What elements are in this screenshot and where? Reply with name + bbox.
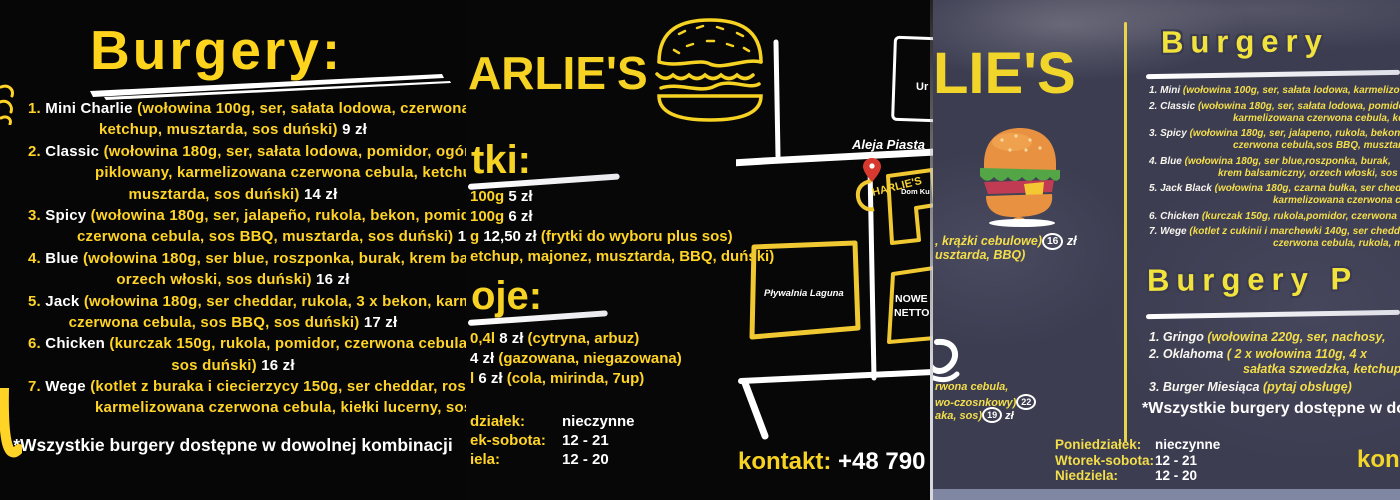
cropped-letter-icon <box>0 388 22 483</box>
menu-line: krem balsamiczny, orzech włoski, sos duń… <box>933 169 1400 181</box>
item-price: 1 <box>458 228 466 245</box>
opening-hours: działek:nieczynneek-sobota:12 - 21iela:1… <box>466 414 635 471</box>
item-number: 4. <box>1149 156 1160 167</box>
item-desc: czerwona cebula,sos BBQ, musztarda, <box>1233 140 1400 151</box>
item-price: 14 zł <box>304 186 338 203</box>
item-desc: (wołowina 180g, czarna bułka, ser chedda… <box>1215 183 1400 194</box>
menu-line: wo-czosnkowy)22 <box>933 395 1036 408</box>
item-name: Mini Charlie <box>45 100 137 117</box>
price-badge: 19 <box>982 407 1002 423</box>
item-desc: 0,4l <box>470 330 499 347</box>
item-desc: karmelizowana czerwona cebula, kiełki lu… <box>95 399 466 416</box>
item-desc: (kotlet z buraka i ciecierzycy 150g, ser… <box>90 378 466 395</box>
item-desc: sałatka szwedzka, ketchup, <box>1243 362 1400 376</box>
burgery-title: Burgery: <box>90 18 343 82</box>
item-desc: (wołowina 100g, ser, sałata lodowa, czer… <box>137 100 466 117</box>
middle-menu-panel: ARLIE'S tki: 100g 5 zł100g 6 złg 12,50 z… <box>466 0 933 500</box>
item-number: 5. <box>28 293 45 310</box>
map-netto-building <box>889 268 933 342</box>
item-number: 6. <box>1149 211 1160 222</box>
table-edge <box>933 489 1400 500</box>
item-name: Jack Black <box>1160 183 1215 194</box>
item-desc: (wołowina 220g, ser, nachosy, <box>1207 330 1385 344</box>
item-number: 7. <box>1149 226 1160 237</box>
menu-line: czerwona cebula,sos BBQ, musztarda, <box>933 141 1400 153</box>
panel-separator <box>930 0 933 500</box>
item-desc: (wołowina 180g, ser, jalapeño, rukola, b… <box>91 207 466 224</box>
item-desc: krem balsamiczny, orzech włoski, sos duń… <box>1218 168 1400 179</box>
item-price: 6 zł <box>478 370 506 387</box>
menu-line: 3. Spicy (wołowina 180g, ser, jalapeño, … <box>0 208 466 229</box>
menu-triptych: Burgery: 1. Mini Charlie (wołowina 100g,… <box>0 0 1400 500</box>
item-desc: (cytryna, arbuz) <box>528 330 640 347</box>
map-road <box>776 42 778 156</box>
contact-label: kont <box>1357 446 1400 474</box>
item-desc: (wołowina 180g, ser, sałata lodowa, pomi… <box>104 143 466 160</box>
hours-value: nieczynne <box>562 413 635 430</box>
item-desc: ( 2 x wołowina 110g, 4 x <box>1227 347 1367 361</box>
menu-line: 1. Mini (wołowina 100g, ser, sałata lodo… <box>933 86 1400 98</box>
menu-line: 100g 5 zł <box>466 189 774 209</box>
map-street-label: Aleja Piasta <box>851 137 925 152</box>
item-number: 2. <box>28 143 45 160</box>
item-name: Chicken <box>1160 211 1202 222</box>
menu-line: Wtorek-sobota:12 - 21 <box>1055 454 1220 470</box>
item-desc: (pytaj obsługę) <box>1263 380 1352 394</box>
menu-line: czerwona cebula, rukola, majonez, <box>933 239 1400 251</box>
item-name: Blue <box>45 250 83 267</box>
item-number: 4. <box>28 250 45 267</box>
menu-line: 2. Oklahoma ( 2 x wołowina 110g, 4 x <box>933 348 1400 363</box>
menu-line: działek:nieczynne <box>466 414 635 433</box>
menu-line: aka, sos)19 zł <box>933 408 1036 421</box>
hours-label: Wtorek-sobota: <box>1055 454 1155 468</box>
item-desc: piklowany, karmelizowana czerwona cebula… <box>95 164 466 181</box>
map-road <box>741 372 933 381</box>
location-pin-dot <box>869 163 874 168</box>
item-desc: (wołowina 180g, ser blue, roszponka, bur… <box>83 250 466 267</box>
hours-value: 12 - 21 <box>1155 453 1197 468</box>
map-road-aleja-piasta <box>736 152 933 163</box>
brush-underline <box>1146 310 1400 319</box>
item-name: Blue <box>1160 156 1184 167</box>
item-desc: sos duński) <box>171 357 261 374</box>
hand-drawn-map: Aleja Piasta Ur HARLIE'S Dom Ku Pływalni… <box>736 0 933 500</box>
menu-line: musztarda, sos duński) 14 zł <box>0 187 466 208</box>
item-desc: karmelizowana czerwona cebula, <box>1273 195 1400 206</box>
menu-line: Poniedziałek:nieczynne <box>1055 438 1220 454</box>
menu-line: 6. Chicken (kurczak 150g, rukola,pomidor… <box>933 212 1400 224</box>
item-name: Spicy <box>1160 128 1189 139</box>
item-name: Wege <box>45 378 90 395</box>
hours-label: Poniedziałek: <box>1055 438 1155 452</box>
item-price: 12,50 zł <box>483 228 541 245</box>
hours-label: Niedziela: <box>1055 469 1155 483</box>
menu-line: iela:12 - 20 <box>466 452 635 471</box>
brush-underline <box>90 74 462 102</box>
menu-line: g 12,50 zł (frytki do wyboru plus sos) <box>466 229 774 249</box>
map-netto-label-2: NETTO <box>894 307 929 319</box>
item-name: Gringo <box>1163 330 1207 344</box>
hours-value: 12 - 20 <box>562 451 609 468</box>
fries-list: 100g 5 zł100g 6 złg 12,50 zł (frytki do … <box>466 189 774 269</box>
item-name: Mini <box>1160 85 1183 96</box>
menu-line: 100g 6 zł <box>466 209 774 229</box>
item-desc: (kurczak 150g, rukola, pomidor, czerwona… <box>109 335 466 352</box>
menu-line: 0,4l 8 zł (cytryna, arbuz) <box>466 331 682 351</box>
brush-underline <box>1146 70 1400 79</box>
premium-burger-list: 1. Gringo (wołowina 220g, ser, nachosy,2… <box>933 328 1400 396</box>
item-desc: (kotlet z cukinii i marchewki 140g, ser … <box>1189 226 1400 237</box>
item-desc: g <box>470 228 483 245</box>
item-desc: czerwona cebula, sos BBQ, sos duński) <box>69 314 364 331</box>
item-desc: (frytki do wyboru plus sos) <box>541 228 733 245</box>
opening-hours: Poniedziałek:nieczynneWtorek-sobota:12 -… <box>1055 438 1220 485</box>
item-name: Classic <box>1160 101 1198 112</box>
menu-line: karmelizowana czerwona cebula, kiełki lu… <box>0 400 466 421</box>
menu-line: 3. Burger Miesiąca (pytaj obsługę) <box>933 381 1400 396</box>
right-menu-panel: LIE'S , krążki cebulowe)16 złusztarda, B… <box>933 0 1400 500</box>
menu-line: Niedziela:12 - 20 <box>1055 469 1220 485</box>
item-number: 1. <box>1149 85 1160 96</box>
item-name: Wege <box>1160 226 1189 237</box>
item-desc: 100g <box>470 208 508 225</box>
hours-value: 12 - 20 <box>1155 468 1197 483</box>
menu-line: czerwona cebula, sos BBQ, sos duński) 17… <box>0 315 466 336</box>
item-desc: (kurczak 150g, rukola,pomidor, czerwona <box>1202 211 1397 222</box>
hours-value: 12 - 21 <box>562 432 609 449</box>
menu-line: piklowany, karmelizowana czerwona cebula… <box>0 165 466 186</box>
menu-line: 4. Blue (wołowina 180g, ser blue, roszpo… <box>0 251 466 272</box>
menu-line: 2. Classic (wołowina 180g, ser, sałata l… <box>0 144 466 165</box>
item-name: Classic <box>45 143 103 160</box>
item-price: 8 zł <box>499 330 527 347</box>
menu-line: 5. Jack (wołowina 180g, ser cheddar, ruk… <box>0 294 466 315</box>
menu-line: czerwona cebula, sos BBQ, musztarda, sos… <box>0 229 466 250</box>
fries-section-title: tki: <box>471 138 531 183</box>
restaurant-logo-text: ARLIE'S <box>468 46 648 100</box>
map-building-outline <box>893 37 933 121</box>
burgery-premium-bubble-title: Burgery P <box>1147 261 1358 299</box>
menu-line: 1. Mini Charlie (wołowina 100g, ser, sał… <box>0 101 466 122</box>
item-desc: czerwona cebula, sos BBQ, musztarda, sos… <box>77 228 458 245</box>
menu-line: 7. Wege (kotlet z buraka i ciecierzycy 1… <box>0 379 466 400</box>
left-menu-panel: Burgery: 1. Mini Charlie (wołowina 100g,… <box>0 0 466 500</box>
map-building-label: Ur <box>916 81 929 93</box>
item-price: 9 zł <box>342 121 367 138</box>
item-price: 16 zł <box>261 357 295 374</box>
item-desc: (wołowina 180g, ser blue,roszponka, bura… <box>1185 156 1391 167</box>
menu-line: sałatka szwedzka, ketchup, <box>933 363 1400 378</box>
menu-line: 1. Gringo (wołowina 220g, ser, nachosy, <box>933 331 1400 346</box>
hours-label: działek: <box>470 414 562 429</box>
menu-line: usztarda, BBQ) <box>933 249 1077 264</box>
item-name: Oklahoma <box>1163 347 1227 361</box>
item-desc: musztarda, sos duński) <box>128 186 303 203</box>
item-name: Chicken <box>45 335 109 352</box>
item-desc: (wołowina 100g, ser, sałata lodowa, karm… <box>1183 85 1400 96</box>
menu-line: etchup, majonez, musztarda, BBQ, duński) <box>466 249 774 269</box>
item-price: 17 zł <box>364 314 398 331</box>
item-number: 2. <box>1149 347 1163 361</box>
burger-list: 1. Mini Charlie (wołowina 100g, ser, sał… <box>0 101 466 422</box>
menu-line: 6. Chicken (kurczak 150g, rukola, pomido… <box>0 336 466 357</box>
item-name: Burger Miesiąca <box>1163 380 1263 394</box>
combo-note: *Wszystkie burgery dostępne w dowolnej <box>1142 400 1400 418</box>
menu-line: sos duński) 16 zł <box>0 358 466 379</box>
menu-line: karmelizowana czerwona cebula, <box>933 196 1400 208</box>
text: zł <box>1002 410 1014 422</box>
item-number: 3. <box>28 207 45 224</box>
item-desc: czerwona cebula, rukola, majonez, <box>1273 238 1400 249</box>
item-number: 6. <box>28 335 45 352</box>
item-number: 3. <box>1149 128 1160 139</box>
hours-label: ek-sobota: <box>470 433 562 448</box>
item-price: 6 zł <box>508 208 532 225</box>
map-road <box>870 168 874 378</box>
item-number: 5. <box>1149 183 1160 194</box>
item-price: 16 zł <box>316 271 350 288</box>
drinks-section-title: oje: <box>471 274 542 319</box>
item-desc: orzech włoski, sos duński) <box>116 271 316 288</box>
item-number: 1. <box>28 100 45 117</box>
menu-line: ek-sobota:12 - 21 <box>466 433 635 452</box>
item-price: 5 zł <box>508 188 532 205</box>
item-name: Spicy <box>45 207 90 224</box>
item-price: 4 zł <box>470 350 498 367</box>
item-desc: (gazowana, niegazowana) <box>498 350 681 367</box>
map-netto-label-1: NOWE <box>895 293 928 305</box>
item-desc: (wołowina 180g, ser, jalapeno, rukola, b… <box>1190 128 1400 139</box>
burger-list: 1. Mini (wołowina 100g, ser, sałata lodo… <box>933 86 1400 251</box>
item-desc: karmelizowana czerwona cebula, ketchup, <box>1233 113 1400 124</box>
item-desc: (cola, mirinda, 7up) <box>507 370 645 387</box>
menu-line: orzech włoski, sos duński) 16 zł <box>0 272 466 293</box>
item-desc: ketchup, musztarda, sos duński) <box>99 121 342 138</box>
map-dom-label: Dom Ku <box>901 187 930 196</box>
item-desc: aka, sos) <box>935 410 982 422</box>
menu-line: ketchup, musztarda, sos duński) 9 zł <box>0 122 466 143</box>
item-number: 7. <box>28 378 45 395</box>
item-desc: (wołowina 180g, ser, sałata lodowa, pomi… <box>1198 101 1400 112</box>
item-desc: etchup, majonez, musztarda, BBQ, duński) <box>470 248 774 265</box>
location-pin-icon <box>863 158 881 182</box>
hours-label: iela: <box>470 452 562 467</box>
burgery-bubble-title: Burgery <box>1161 23 1329 60</box>
item-name: Jack <box>45 293 84 310</box>
menu-line: karmelizowana czerwona cebula, ketchup, <box>933 114 1400 126</box>
item-desc: (wołowina 180g, ser cheddar, rukola, 3 x… <box>84 293 466 310</box>
item-number: 1. <box>1149 330 1163 344</box>
item-number: 2. <box>1149 101 1160 112</box>
drinks-list: 0,4l 8 zł (cytryna, arbuz)4 zł (gazowana… <box>466 331 682 391</box>
item-desc: 100g <box>470 188 508 205</box>
map-road <box>745 383 765 436</box>
item-number: 3. <box>1149 380 1163 394</box>
price-badge: 22 <box>1016 394 1036 410</box>
combo-note: *Wszystkie burgery dostępne w dowolnej k… <box>0 435 466 456</box>
menu-line: 4 zł (gazowana, niegazowana) <box>466 351 682 371</box>
hours-value: nieczynne <box>1155 437 1220 452</box>
menu-line: l 6 zł (cola, mirinda, 7up) <box>466 371 682 391</box>
map-pool-label: Pływalnia Laguna <box>764 288 844 299</box>
